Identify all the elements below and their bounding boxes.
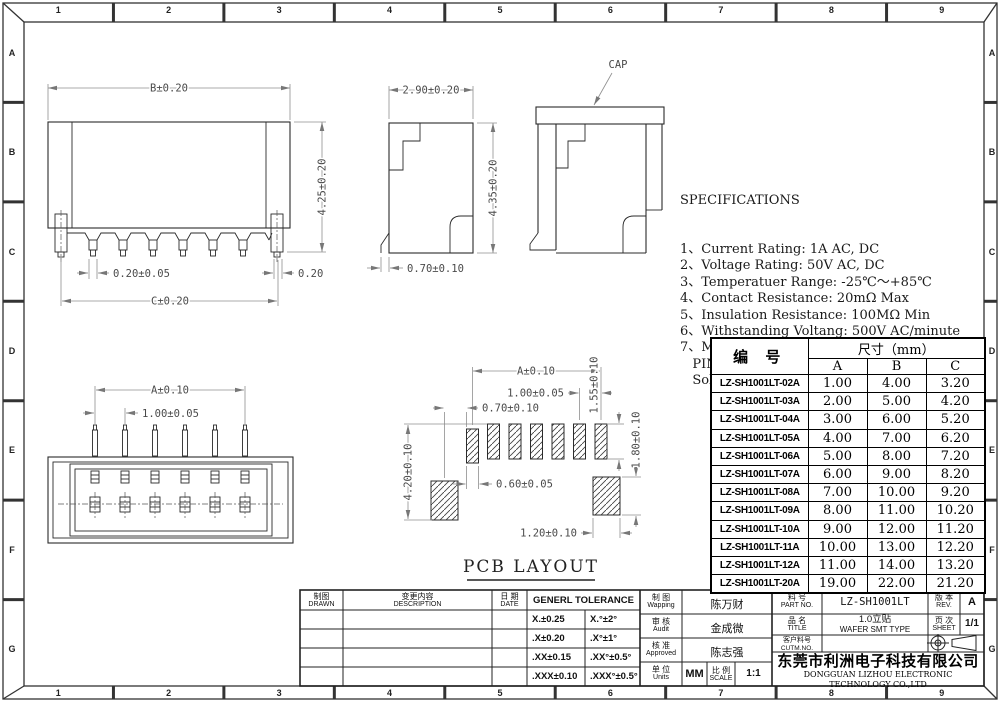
top-view-contacts bbox=[90, 471, 250, 512]
dim-label: 2.90±0.20 bbox=[403, 85, 460, 97]
border-zone-label: D bbox=[6, 346, 18, 356]
size-value-cell: 8.00 bbox=[867, 447, 926, 465]
size-value-cell: 10.20 bbox=[926, 502, 985, 520]
border-zone-label: 3 bbox=[273, 5, 285, 15]
size-value-cell: 9.00 bbox=[808, 520, 867, 538]
dim-label: C±0.20 bbox=[151, 296, 189, 308]
part-number-cell: LZ-SH1001LT-05A bbox=[711, 429, 808, 447]
audit-label: 审 核Audit bbox=[640, 617, 682, 634]
border-zone-label: 9 bbox=[936, 5, 948, 15]
border-zone-label: B bbox=[986, 147, 998, 157]
general-tolerance-title: GENERL TOLERANCE bbox=[527, 595, 640, 606]
border-zone-label: 5 bbox=[494, 5, 506, 15]
description-label: 变更内容DESCRIPTION bbox=[343, 592, 492, 609]
col-header-c: C bbox=[926, 359, 985, 375]
scale-label: 比 例SCALE bbox=[707, 666, 735, 683]
border-zone-label: 3 bbox=[273, 688, 285, 698]
border-zone-label: E bbox=[986, 445, 998, 455]
specifications-title: SPECIFICATIONS bbox=[680, 193, 980, 209]
border-zone-label: 1 bbox=[52, 688, 64, 698]
border-zone-label: 6 bbox=[604, 5, 616, 15]
border-zone-label: 1 bbox=[52, 5, 64, 15]
table-row: LZ-SH1001LT-09A8.0011.0010.20 bbox=[711, 502, 985, 520]
scale-value: 1:1 bbox=[735, 668, 772, 679]
front-view: B±0.20 4.25±0.20 0.20±0.05 0.20 C±0.20 bbox=[48, 83, 329, 308]
border-zone-label: 7 bbox=[715, 5, 727, 15]
part-number-cell: LZ-SH1001LT-03A bbox=[711, 393, 808, 411]
dim-label: 0.20 bbox=[298, 268, 323, 280]
tolerance-cell: .X°±1° bbox=[590, 633, 617, 644]
border-zone-label: 8 bbox=[825, 5, 837, 15]
part-number-cell: LZ-SH1001LT-07A bbox=[711, 465, 808, 483]
part-number-cell: LZ-SH1001LT-10A bbox=[711, 520, 808, 538]
size-value-cell: 8.00 bbox=[808, 502, 867, 520]
border-zone-label: G bbox=[986, 644, 998, 654]
border-zone-label: E bbox=[6, 445, 18, 455]
dim-label: 0.70±0.10 bbox=[407, 263, 464, 275]
date-label: 日 期DATE bbox=[492, 592, 527, 609]
audit-name: 金成微 bbox=[682, 620, 772, 636]
table-row: LZ-SH1001LT-07A6.009.008.20 bbox=[711, 465, 985, 483]
size-value-cell: 13.20 bbox=[926, 556, 985, 574]
border-zone-label: 5 bbox=[494, 688, 506, 698]
spec-item: 5、Insulation Resistance: 100MΩ Min bbox=[680, 308, 980, 324]
size-value-cell: 11.20 bbox=[926, 520, 985, 538]
size-value-cell: 9.00 bbox=[867, 465, 926, 483]
size-value-cell: 10.00 bbox=[808, 538, 867, 556]
size-value-cell: 7.00 bbox=[808, 484, 867, 502]
size-value-cell: 5.00 bbox=[808, 447, 867, 465]
border-zone-label: F bbox=[986, 545, 998, 555]
tolerance-cell: .XX±0.15 bbox=[532, 652, 571, 663]
border-zone-label: 4 bbox=[384, 688, 396, 698]
approved-name: 陈志强 bbox=[682, 644, 772, 660]
table-row: LZ-SH1001LT-03A2.005.004.20 bbox=[711, 393, 985, 411]
third-angle-projection-icon bbox=[927, 634, 976, 652]
wapping-label: 制 图Wapping bbox=[640, 593, 682, 610]
size-value-cell: 11.00 bbox=[867, 502, 926, 520]
tolerance-cell: .XX°±0.5° bbox=[590, 652, 631, 663]
dim-label: A±0.10 bbox=[517, 366, 555, 378]
parts-size-table: 编 号 尺寸（mm） A B C LZ-SH1001LT-02A1.004.00… bbox=[710, 337, 986, 594]
border-zone-label: A bbox=[6, 48, 18, 58]
cap-label: CAP bbox=[609, 59, 628, 71]
border-zone-label: 4 bbox=[384, 5, 396, 15]
size-value-cell: 6.00 bbox=[867, 411, 926, 429]
border-zone-label: 6 bbox=[604, 688, 616, 698]
part-no-value: LZ-SH1001LT bbox=[822, 596, 928, 608]
dim-label: 1.80±0.10 bbox=[631, 412, 643, 469]
pcb-layout-view: A±0.10 1.00±0.05 0.70±0.10 0.60±0.05 1.2… bbox=[403, 357, 643, 580]
dim-label: 4.25±0.20 bbox=[317, 159, 329, 216]
part-number-cell: LZ-SH1001LT-09A bbox=[711, 502, 808, 520]
dim-label: 1.55±0.10 bbox=[589, 357, 601, 414]
pcb-layout-title: PCB LAYOUT bbox=[463, 557, 599, 577]
col-header-b: B bbox=[867, 359, 926, 375]
col-header-size: 尺寸（mm） bbox=[808, 338, 985, 359]
tolerance-cell: .X±0.20 bbox=[532, 633, 565, 644]
part-number-cell: LZ-SH1001LT-08A bbox=[711, 484, 808, 502]
border-zone-label: A bbox=[986, 48, 998, 58]
border-zone-label: G bbox=[6, 644, 18, 654]
size-value-cell: 5.20 bbox=[926, 411, 985, 429]
tolerance-cell: .XXX°±0.5° bbox=[590, 671, 638, 682]
border-zone-label: 7 bbox=[715, 688, 727, 698]
size-value-cell: 2.00 bbox=[808, 393, 867, 411]
size-value-cell: 21.20 bbox=[926, 575, 985, 593]
sheet-label: 页 次SHEET bbox=[928, 616, 960, 633]
size-value-cell: 12.00 bbox=[867, 520, 926, 538]
size-value-cell: 5.00 bbox=[867, 393, 926, 411]
dim-label: B±0.20 bbox=[150, 83, 188, 95]
part-number-cell: LZ-SH1001LT-04A bbox=[711, 411, 808, 429]
size-value-cell: 10.00 bbox=[867, 484, 926, 502]
size-value-cell: 1.00 bbox=[808, 375, 867, 393]
border-zone-label: 2 bbox=[163, 688, 175, 698]
border-zone-label: D bbox=[986, 346, 998, 356]
top-view-pins bbox=[93, 425, 248, 456]
sheet-value: 1/1 bbox=[960, 618, 984, 629]
title-label: 品 名TITLE bbox=[772, 616, 822, 633]
spec-item: 4、Contact Resistance: 20mΩ Max bbox=[680, 291, 980, 307]
size-value-cell: 19.00 bbox=[808, 575, 867, 593]
spec-item: 3、Temperatuer Range: -25℃～+85℃ bbox=[680, 275, 980, 291]
spec-item: 2、Voltage Rating: 50V AC, DC bbox=[680, 258, 980, 274]
dim-label: 0.60±0.05 bbox=[496, 479, 553, 491]
size-value-cell: 11.00 bbox=[808, 556, 867, 574]
size-value-cell: 13.00 bbox=[867, 538, 926, 556]
table-row: LZ-SH1001LT-11A10.0013.0012.20 bbox=[711, 538, 985, 556]
cap-view: CAP bbox=[530, 59, 664, 253]
tolerance-cell: X.°±2° bbox=[590, 614, 617, 625]
table-row: LZ-SH1001LT-12A11.0014.0013.20 bbox=[711, 556, 985, 574]
size-value-cell: 22.00 bbox=[867, 575, 926, 593]
units-value: MM bbox=[682, 668, 707, 680]
size-value-cell: 4.00 bbox=[808, 429, 867, 447]
dim-label: 1.00±0.05 bbox=[507, 388, 564, 400]
table-row: LZ-SH1001LT-04A3.006.005.20 bbox=[711, 411, 985, 429]
col-header-part-no: 编 号 bbox=[711, 338, 808, 375]
drawn-label: 制图DRAWN bbox=[300, 592, 343, 609]
rev-label: 版 本REV. bbox=[928, 593, 960, 610]
product-name: 1.0立贴WAFER SMT TYPE bbox=[822, 615, 928, 634]
dim-label: 0.70±0.10 bbox=[482, 403, 539, 415]
part-number-cell: LZ-SH1001LT-12A bbox=[711, 556, 808, 574]
border-zone-label: F bbox=[6, 545, 18, 555]
size-value-cell: 6.00 bbox=[808, 465, 867, 483]
table-row: LZ-SH1001LT-10A9.0012.0011.20 bbox=[711, 520, 985, 538]
tolerance-cell: .XXX±0.10 bbox=[532, 671, 577, 682]
drawing-sheet: B±0.20 4.25±0.20 0.20±0.05 0.20 C±0.20 2… bbox=[0, 0, 1000, 702]
dim-label: 1.00±0.05 bbox=[142, 408, 199, 420]
border-zone-label: 2 bbox=[163, 5, 175, 15]
size-value-cell: 12.20 bbox=[926, 538, 985, 556]
dim-label: 4.20±0.10 bbox=[403, 444, 415, 501]
part-number-cell: LZ-SH1001LT-02A bbox=[711, 375, 808, 393]
border-zone-label: C bbox=[6, 247, 18, 257]
wapping-name: 陈万财 bbox=[682, 596, 772, 612]
size-value-cell: 4.00 bbox=[867, 375, 926, 393]
size-value-cell: 7.00 bbox=[867, 429, 926, 447]
spec-item: 1、Current Rating: 1A AC, DC bbox=[680, 242, 980, 258]
size-value-cell: 6.20 bbox=[926, 429, 985, 447]
top-view: A±0.10 1.00±0.05 bbox=[48, 385, 293, 544]
size-value-cell: 9.20 bbox=[926, 484, 985, 502]
dim-label: 1.20±0.10 bbox=[520, 528, 577, 540]
col-header-a: A bbox=[808, 359, 867, 375]
border-zone-label: B bbox=[6, 147, 18, 157]
table-row: LZ-SH1001LT-20A19.0022.0021.20 bbox=[711, 575, 985, 593]
table-row: LZ-SH1001LT-02A1.004.003.20 bbox=[711, 375, 985, 393]
table-row: LZ-SH1001LT-05A4.007.006.20 bbox=[711, 429, 985, 447]
size-value-cell: 3.20 bbox=[926, 375, 985, 393]
units-label: 单 位Units bbox=[640, 665, 682, 682]
border-zone-label: C bbox=[986, 247, 998, 257]
part-number-cell: LZ-SH1001LT-20A bbox=[711, 575, 808, 593]
size-value-cell: 7.20 bbox=[926, 447, 985, 465]
size-value-cell: 8.20 bbox=[926, 465, 985, 483]
side-view: 2.90±0.20 4.35±0.20 0.70±0.10 bbox=[367, 85, 500, 276]
table-row: LZ-SH1001LT-06A5.008.007.20 bbox=[711, 447, 985, 465]
part-number-cell: LZ-SH1001LT-11A bbox=[711, 538, 808, 556]
table-row: LZ-SH1001LT-08A7.0010.009.20 bbox=[711, 484, 985, 502]
size-value-cell: 3.00 bbox=[808, 411, 867, 429]
tolerance-cell: X.±0.25 bbox=[532, 614, 565, 625]
customer-part-no-label: 客户料号CUTM.NO. bbox=[772, 637, 822, 652]
dim-label: 4.35±0.20 bbox=[488, 160, 500, 217]
part-number-cell: LZ-SH1001LT-06A bbox=[711, 447, 808, 465]
company-name: 东莞市利洲电子科技有限公司 DONGGUAN LIZHOU ELECTRONIC… bbox=[772, 653, 984, 690]
rev-value: A bbox=[960, 596, 984, 608]
part-no-label: 料 号PART NO. bbox=[772, 593, 822, 610]
dim-label: A±0.10 bbox=[151, 385, 189, 397]
dim-label: 0.20±0.05 bbox=[113, 268, 170, 280]
size-value-cell: 14.00 bbox=[867, 556, 926, 574]
approved-label: 核 准Approved bbox=[640, 641, 682, 658]
front-pins bbox=[89, 240, 247, 256]
pcb-pads bbox=[431, 424, 620, 520]
size-value-cell: 4.20 bbox=[926, 393, 985, 411]
